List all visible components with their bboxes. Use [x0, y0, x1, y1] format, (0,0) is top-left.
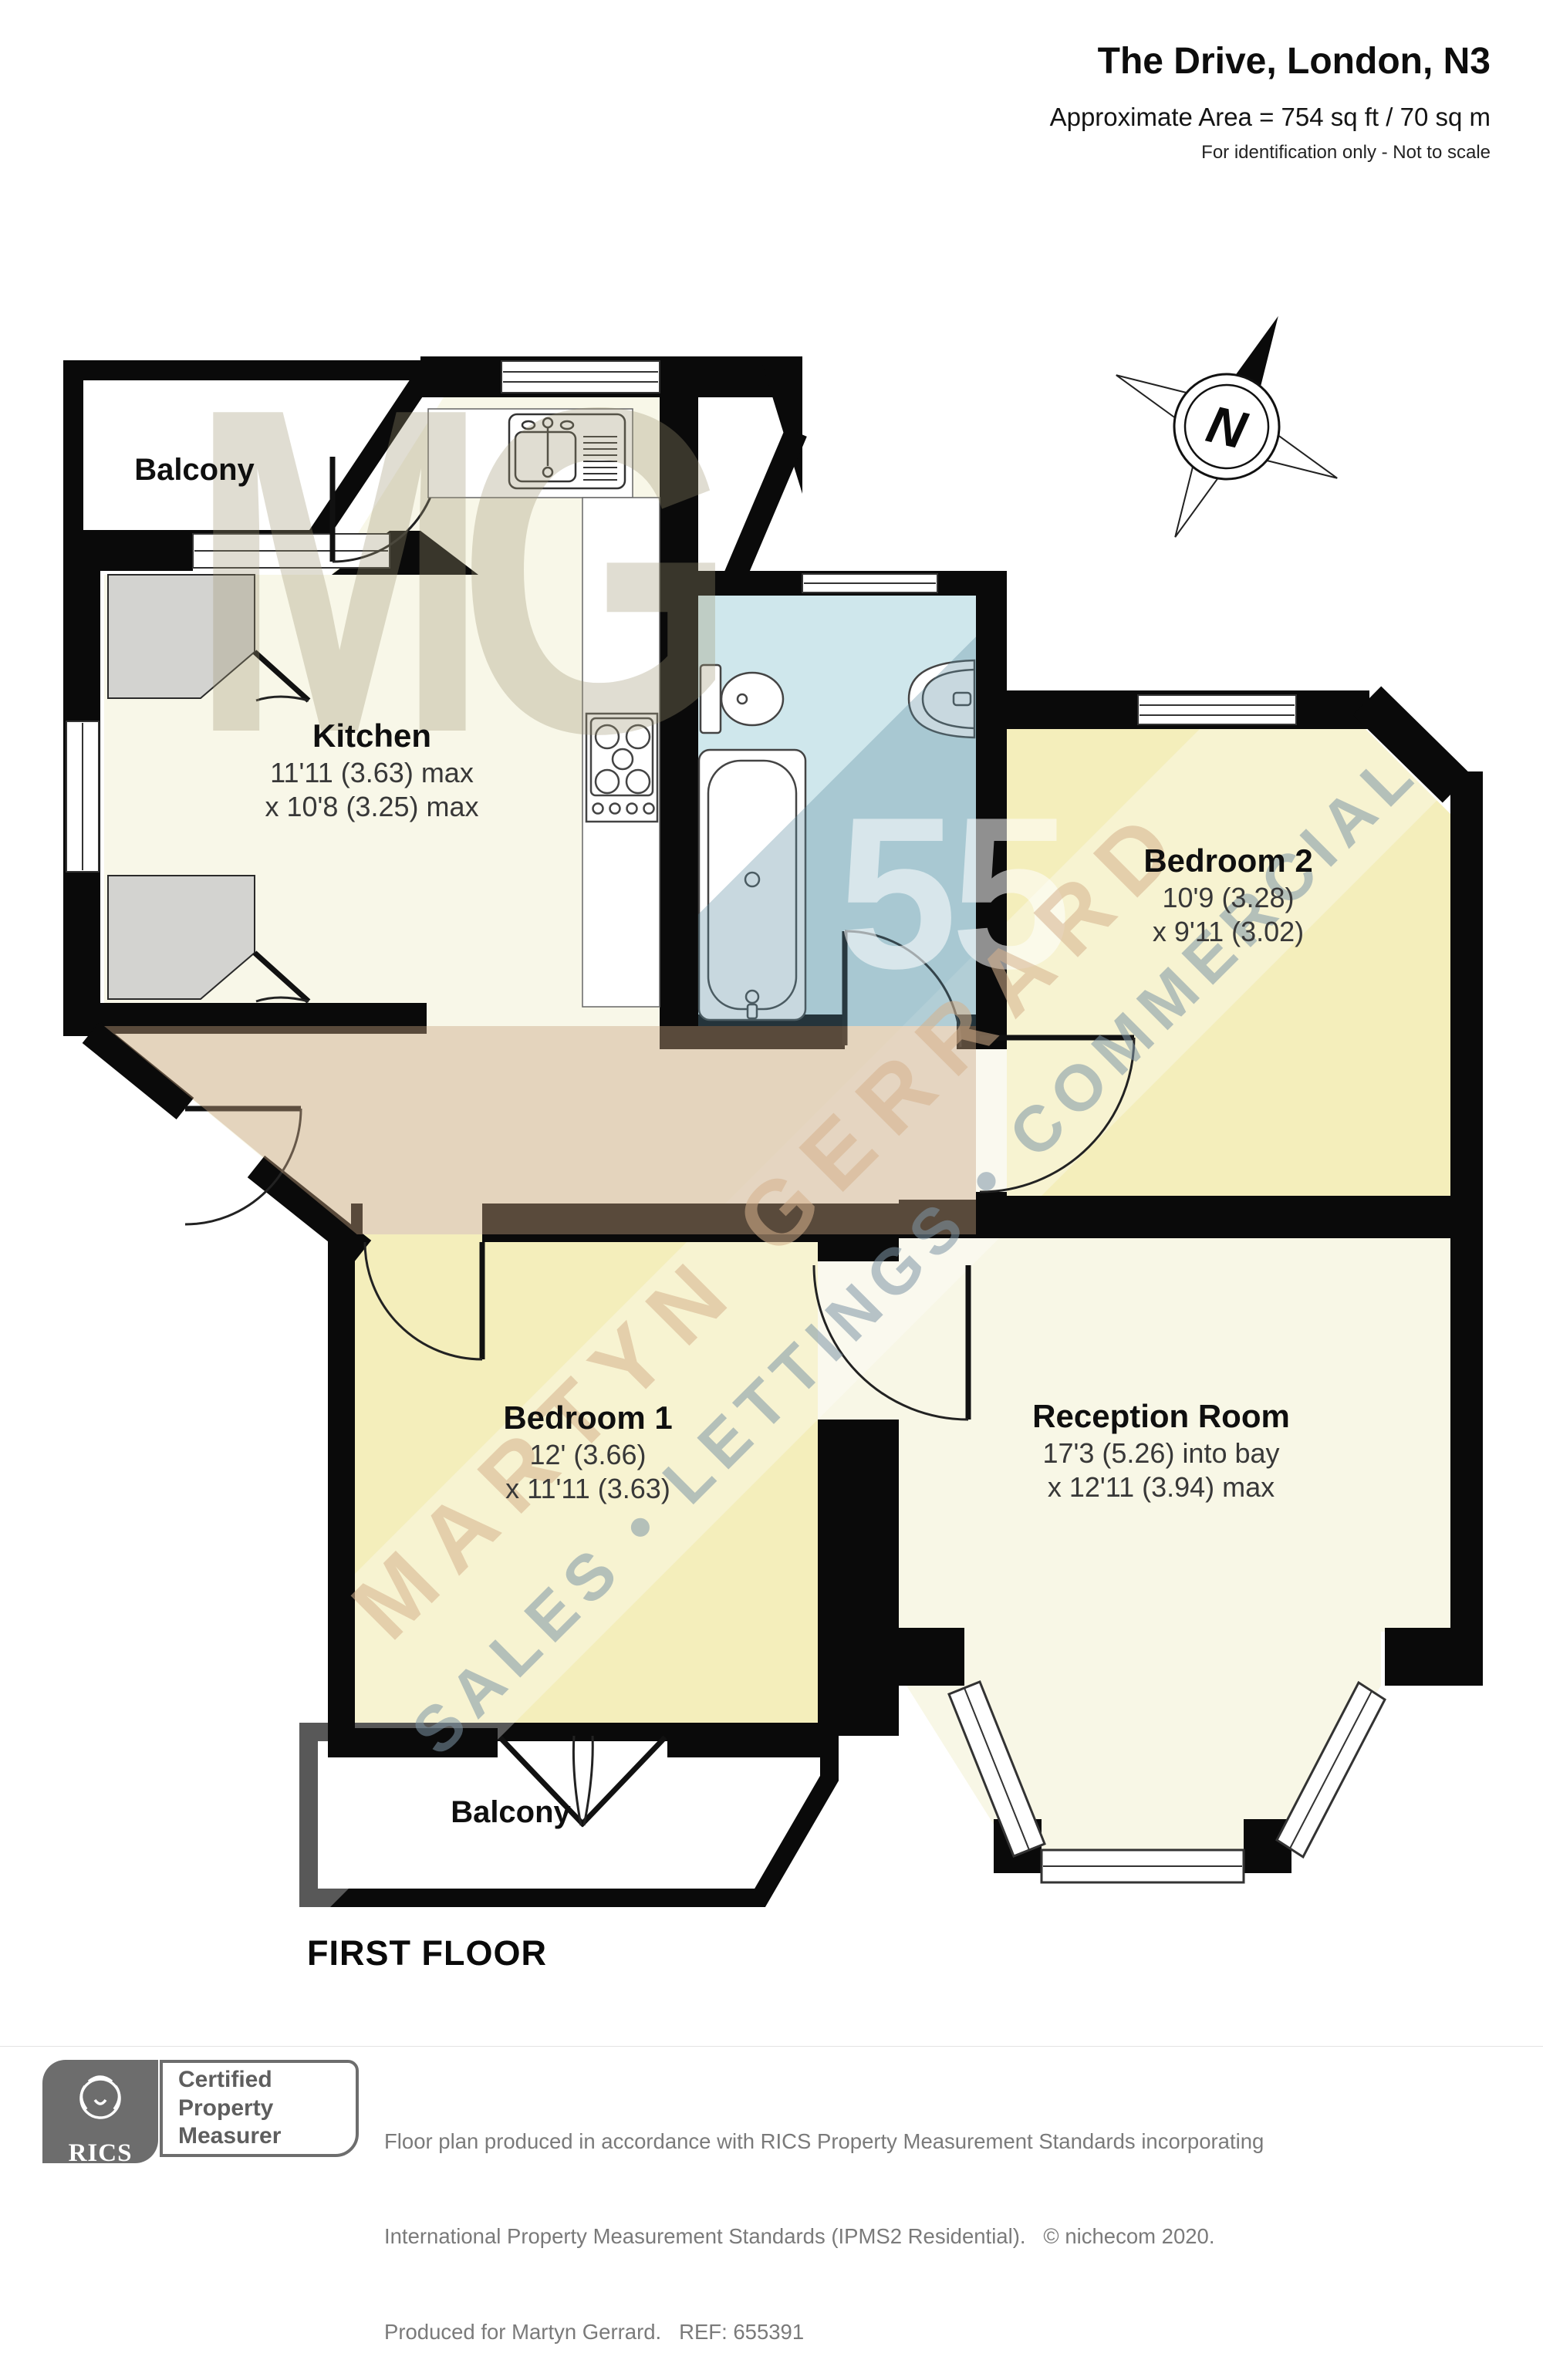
balcony-top-label: Balcony — [134, 453, 255, 487]
bedroom1-dim1: 12' (3.66) — [530, 1439, 647, 1470]
bedroom1-dim2: x 11'11 (3.63) — [505, 1473, 670, 1504]
bedroom2-name: Bedroom 2 — [1143, 842, 1312, 879]
rics-lion-icon — [42, 2060, 158, 2134]
footer-text-line-1: Floor plan produced in accordance with R… — [384, 2125, 1264, 2157]
kitchen-dim2: x 10'8 (3.25) max — [265, 791, 479, 822]
certified-property-measurer-badge: Certified Property Measurer — [160, 2060, 359, 2157]
scale-note: For identification only - Not to scale — [1050, 142, 1491, 164]
reception-dim1: 17'3 (5.26) into bay — [1042, 1437, 1279, 1469]
rics-logo: RICS — [42, 2060, 158, 2163]
badge-line-1: Certified — [178, 2066, 356, 2095]
reception-dim2: x 12'11 (3.94) max — [1048, 1471, 1275, 1503]
kitchen-name: Kitchen — [312, 717, 431, 754]
kitchen-dim1: 11'11 (3.63) max — [270, 757, 474, 788]
room-labels: Balcony Kitchen 11'11 (3.63) max x 10'8 … — [0, 0, 1543, 2183]
badge-line-3: Measurer — [178, 2122, 356, 2151]
footer-text: Floor plan produced in accordance with R… — [384, 2061, 1264, 2380]
page-title: The Drive, London, N3 — [1050, 40, 1491, 83]
area-subtitle: Approximate Area = 754 sq ft / 70 sq m — [1050, 103, 1491, 132]
footer-divider — [0, 2046, 1543, 2047]
bedroom2-dim2: x 9'11 (3.02) — [1153, 916, 1304, 947]
balcony-bottom-label: Balcony — [451, 1795, 571, 1829]
reception-name: Reception Room — [1032, 1398, 1290, 1434]
badge-line-2: Property — [178, 2095, 356, 2123]
bedroom1-name: Bedroom 1 — [503, 1399, 672, 1436]
header: The Drive, London, N3 Approximate Area =… — [1050, 40, 1491, 164]
footer-text-line-3: Produced for Martyn Gerrard. REF: 655391 — [384, 2316, 1264, 2348]
bedroom2-dim1: 10'9 (3.28) — [1163, 882, 1295, 913]
rics-wordmark: RICS — [42, 2139, 158, 2168]
first-floor-label: FIRST FLOOR — [307, 1933, 547, 1973]
footer-text-line-2: International Property Measurement Stand… — [384, 2220, 1264, 2252]
